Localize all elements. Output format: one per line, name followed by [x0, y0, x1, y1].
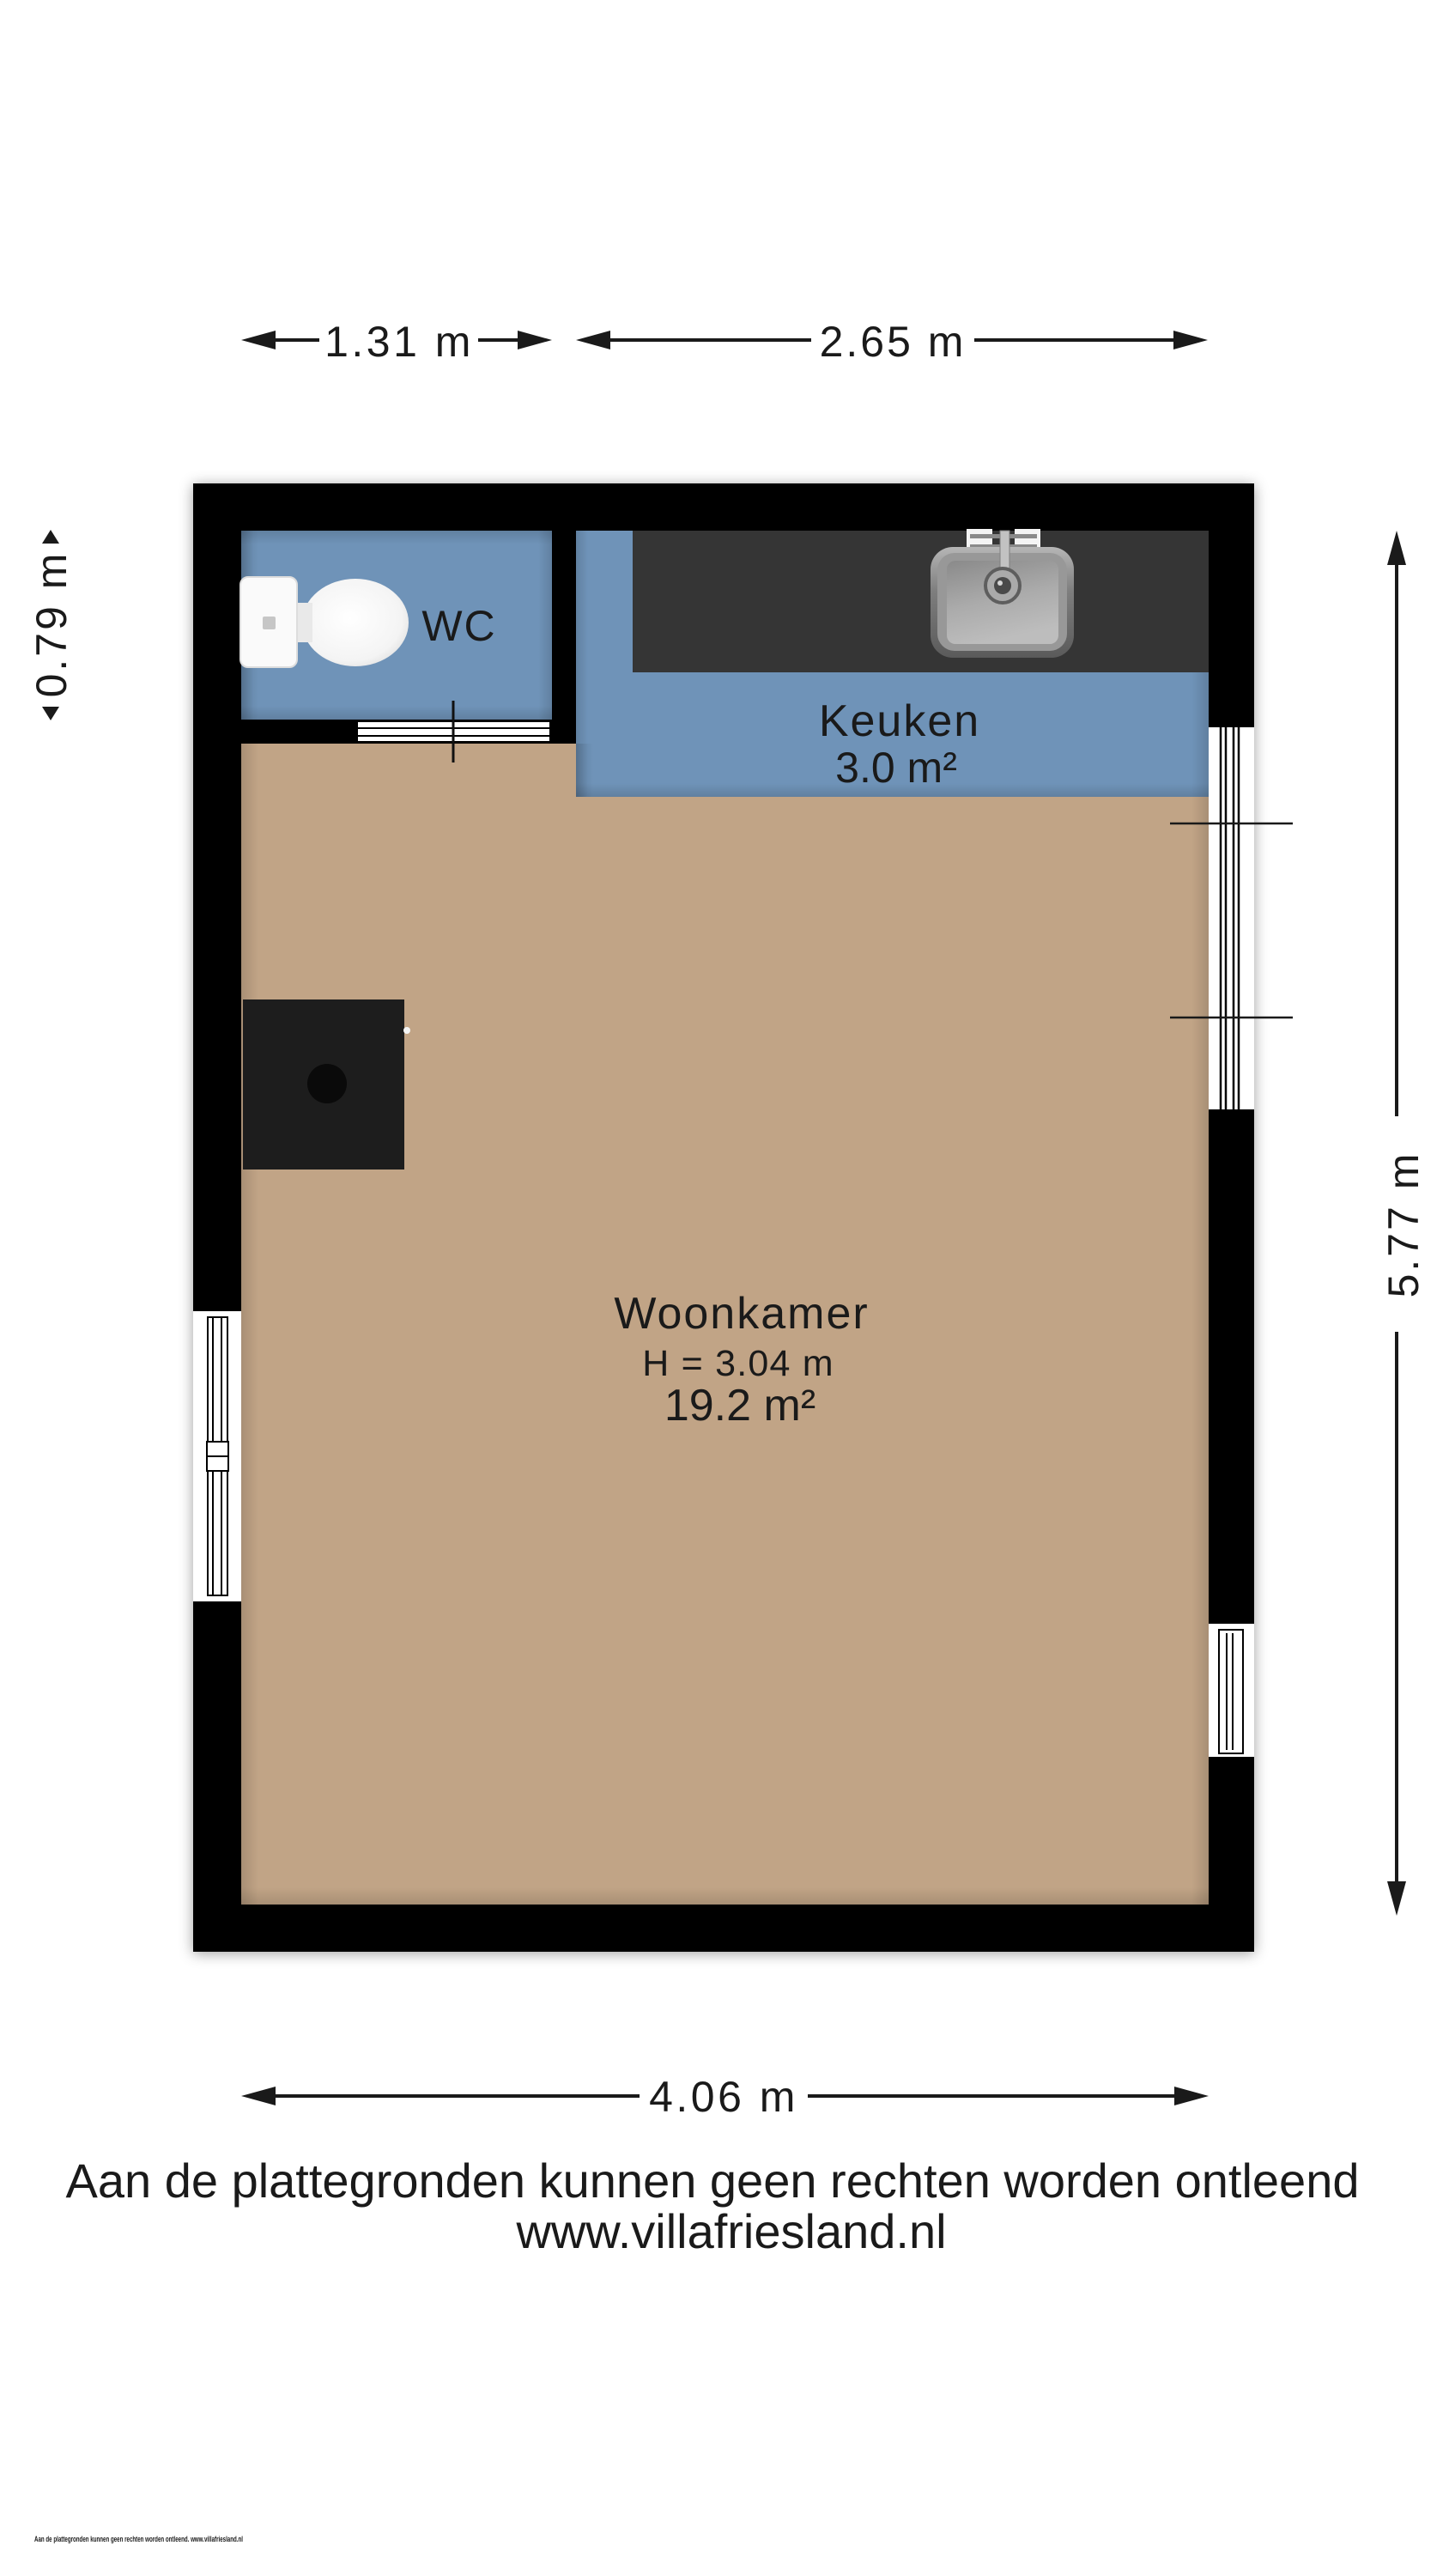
svg-text:3.0 m²: 3.0 m² [835, 744, 957, 792]
svg-text:H = 3.04 m: H = 3.04 m [642, 1343, 834, 1384]
svg-text:WC: WC [421, 602, 496, 650]
svg-text:5.77 m: 5.77 m [1379, 1151, 1428, 1298]
svg-text:0.79 m: 0.79 m [27, 551, 76, 698]
svg-text:Keuken: Keuken [819, 696, 980, 746]
svg-text:Woonkamer: Woonkamer [614, 1289, 869, 1339]
svg-text:www.villafriesland.nl: www.villafriesland.nl [515, 2204, 946, 2258]
svg-text:Aan de plattegronden kunnen ge: Aan de plattegronden kunnen geen rechten… [66, 2154, 1360, 2208]
svg-text:19.2 m²: 19.2 m² [664, 1381, 815, 1431]
svg-text:1.31 m: 1.31 m [324, 318, 474, 366]
svg-text:Aan de plattegronden kunnen ge: Aan de plattegronden kunnen geen rechten… [34, 2535, 243, 2543]
svg-text:4.06 m: 4.06 m [649, 2073, 798, 2121]
svg-text:2.65 m: 2.65 m [820, 318, 967, 366]
